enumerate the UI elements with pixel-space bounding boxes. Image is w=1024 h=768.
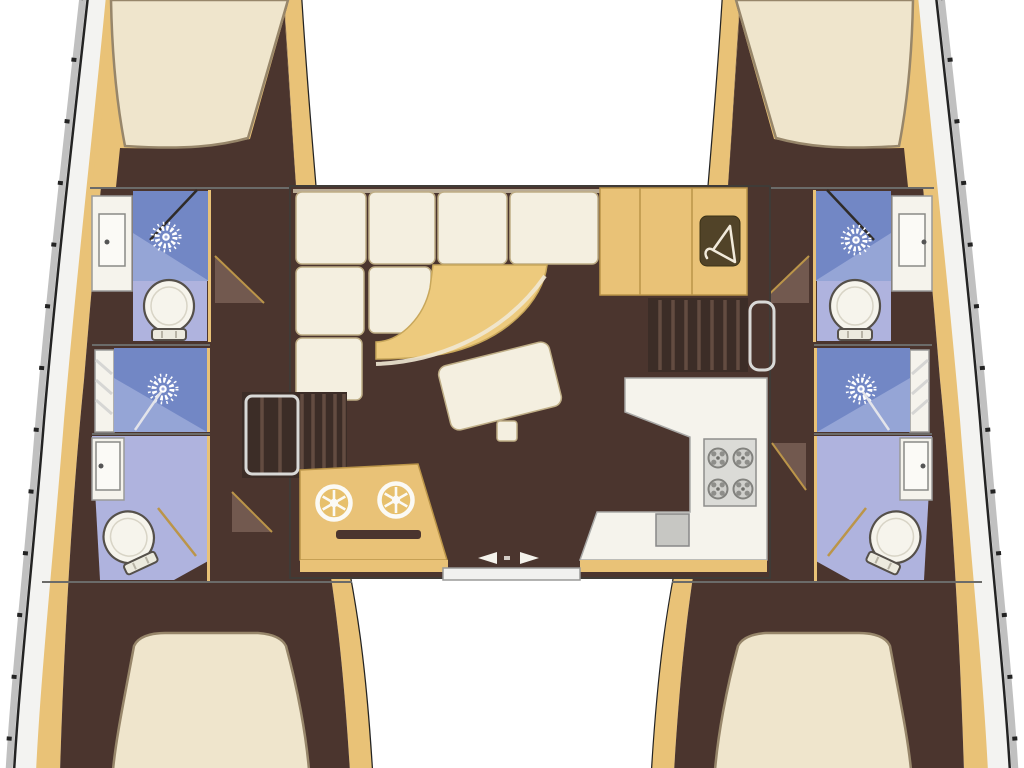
stool [497,421,517,441]
partition-wall [814,436,817,582]
partition-wall [207,436,210,582]
galley-sink [656,514,689,546]
sofa-cushion [369,192,435,264]
partition-wall [208,190,211,342]
aft-berth [113,633,309,768]
catamaran-floor-plan [0,0,1024,768]
burner-icon [734,480,753,499]
dial-icon [318,487,351,520]
aft-berth [715,633,911,768]
sink-basin [99,214,125,266]
sink-drain [922,240,927,245]
saloon [242,186,774,580]
dial-icon [380,484,413,517]
partition-wall [814,348,817,432]
sofa-cushion [438,192,507,264]
sofa-cushion [296,338,362,400]
console-base-trim [300,560,448,572]
toilet-icon [830,280,880,340]
burner-icon [734,449,753,468]
sofa-cushion [510,192,598,264]
sink-drain [105,240,110,245]
partition-wall [813,190,816,342]
burner-icon [709,480,728,499]
sofa-cushion [296,192,366,264]
slide-arrow-dash [504,556,510,560]
burner-icon [709,449,728,468]
galley-base-trim [580,560,767,572]
sofa-cushion [296,267,364,335]
step-treads [660,300,738,370]
sink-drain [921,464,926,469]
companionway-steps-port [242,392,347,478]
sink-drain [99,464,104,469]
floor-plan-canvas [0,0,1024,768]
sink-basin [899,214,925,266]
partition-wall [207,348,210,432]
console-slot [336,530,421,539]
toilet-icon [144,280,194,340]
sliding-door-sill [443,568,580,580]
